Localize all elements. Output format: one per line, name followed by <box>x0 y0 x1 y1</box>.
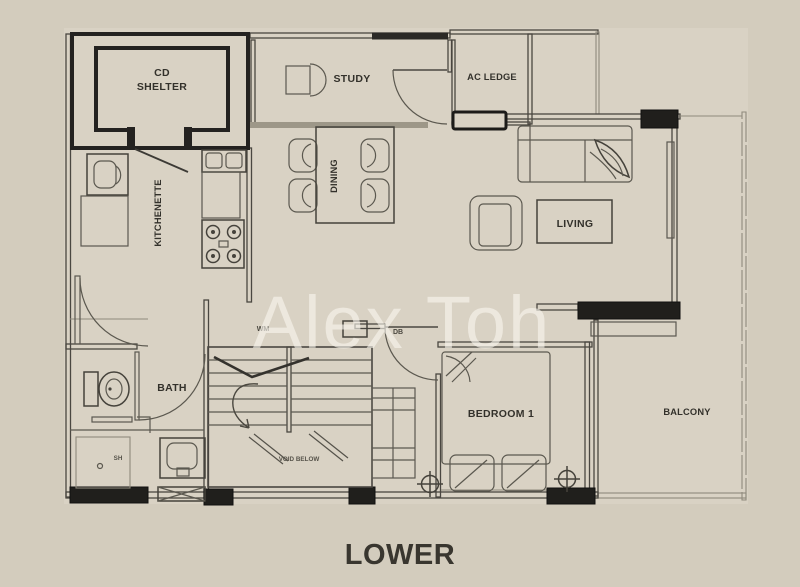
ac-ledge: AC LEDGE <box>467 72 517 82</box>
void-below-label: VOID BELOW <box>279 456 320 463</box>
floorplan-drawing: CD SHELTER STUDY AC LEDGE DINING <box>0 0 800 587</box>
floorplan-canvas: CD SHELTER STUDY AC LEDGE DINING <box>0 0 800 587</box>
study-label: STUDY <box>333 73 370 85</box>
ledge-block <box>453 112 506 129</box>
bath-label: BATH <box>157 382 187 394</box>
watermark: Alex Toh <box>253 281 552 364</box>
cd-shelter-label-line2: SHELTER <box>137 81 187 93</box>
floor-area <box>64 28 748 504</box>
living-label: LIVING <box>557 218 594 230</box>
kitchenette-label: KITCHENETTE <box>153 179 163 246</box>
balcony: BALCONY <box>663 407 711 417</box>
ac-ledge-label: AC LEDGE <box>467 72 517 82</box>
dining-label: DINING <box>329 159 339 193</box>
bedroom-1-label: BEDROOM 1 <box>468 408 534 420</box>
floor-label: LOWER <box>345 539 455 571</box>
shower-label: SH <box>114 455 123 462</box>
balcony-label: BALCONY <box>663 407 711 417</box>
cd-shelter-label-line1: CD <box>154 67 170 79</box>
